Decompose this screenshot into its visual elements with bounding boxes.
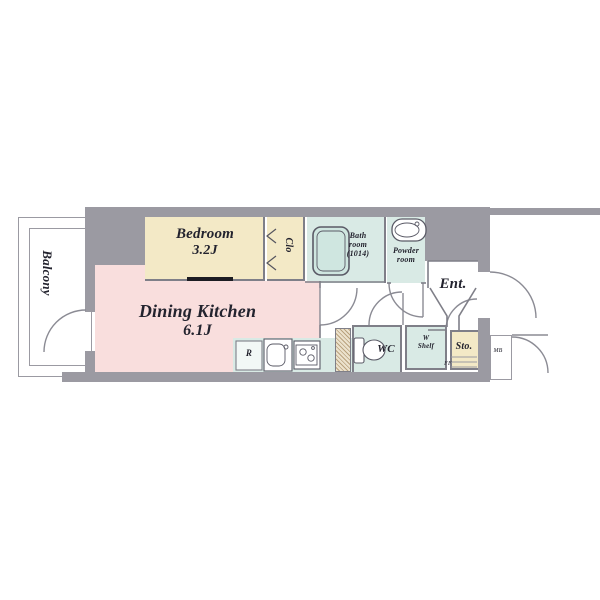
door-arc-balcony [44,310,86,352]
bedroom-label: Bedroom 3.2J [145,226,265,259]
powder-sink-icon [392,219,426,241]
dk-size: 6.1J [105,322,290,340]
door-arc-wc [369,292,402,325]
door-arc-neighbor [512,337,548,373]
entrance-step-right [459,288,476,330]
plan-linework [0,0,600,600]
closet-accordion-icon [267,229,276,270]
shelf-line2: Shelf [405,342,447,350]
entrance-label: Ent. [428,276,478,293]
powder-line1: Powder [387,246,425,255]
powder-line2: room [387,255,425,264]
stove-icon [294,341,320,369]
entrance-step-left [430,288,447,327]
shelf-line1: W [405,334,447,342]
dining-kitchen-label: Dining Kitchen 6.1J [105,301,290,340]
shelf-label: W Shelf [405,334,447,350]
bath-line2: room [332,240,384,249]
door-arc-storage [446,299,477,330]
bath-line1: Bath [332,231,384,240]
bath-line3: (1014) [332,249,384,258]
kitchen-sink-icon [264,339,292,371]
door-arc-hall [320,288,357,325]
floor-plan: Balcony Bedroom 3.2J Clo Bath room (1014… [0,0,600,600]
bedroom-size: 3.2J [145,243,265,259]
dk-name: Dining Kitchen [105,301,290,322]
floor-note-label: FF [441,361,455,368]
door-arc-powder [389,283,423,317]
door-arc-entrance [490,272,536,318]
storage-label: Sto. [450,341,478,353]
balcony-label: Balcony [34,243,54,303]
meter-box-label: MB [490,348,506,355]
fridge-label: R [236,348,262,358]
sliding-door [187,277,233,281]
closet-label: Clo [280,229,294,261]
bedroom-name: Bedroom [145,226,265,243]
wc-label: WC [372,343,400,356]
powder-label: Powder room [387,246,425,264]
bath-label: Bath room (1014) [332,231,384,259]
